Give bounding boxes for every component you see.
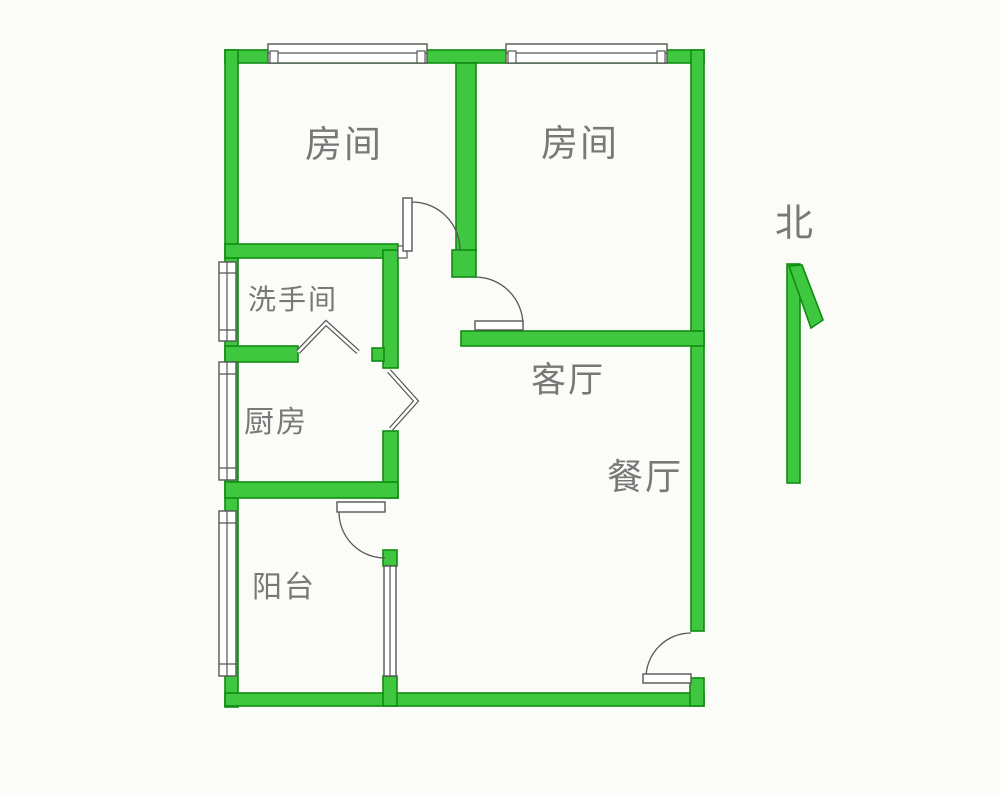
wall-bedroom2-bottom — [461, 331, 704, 346]
living-room-label: 客厅 — [531, 361, 605, 401]
bathroom-bifold-door — [298, 323, 358, 352]
walls — [225, 50, 704, 707]
entrance-door-arc — [646, 633, 691, 678]
bedroom2-window-jamb-left — [508, 51, 516, 63]
bedroom1-door-arc — [412, 202, 460, 250]
doors — [298, 198, 691, 683]
bedroom1-label: 房间 — [305, 123, 383, 166]
kitchen-label: 厨房 — [244, 405, 308, 440]
wall-entry-corner — [690, 678, 704, 706]
floor-plan-drawing: 北 房间 房间 洗手间 厨房 客厅 餐厅 阳台 — [0, 0, 1000, 793]
wall-balcony-divider-stub-bottom — [383, 676, 397, 706]
balcony-door-leaf — [337, 502, 385, 512]
floor-plan-page: 北 房间 房间 洗手间 厨房 客厅 餐厅 阳台 — [0, 0, 1000, 793]
north-label: 北 — [775, 201, 815, 245]
bathroom-label: 洗手间 — [248, 283, 338, 316]
bedroom2-window-jamb-right — [657, 51, 665, 63]
dining-room-label: 餐厅 — [607, 457, 683, 498]
kitchen-bifold-door — [389, 371, 416, 429]
wall-central-divider-foot — [452, 250, 476, 277]
wall-outer-bottom — [225, 693, 704, 706]
compass: 北 — [775, 201, 823, 483]
balcony-door-arc — [339, 512, 385, 558]
balcony-label: 阳台 — [252, 570, 316, 605]
wall-bedroom1-bottom — [225, 244, 398, 258]
wall-kitchen-bottom — [225, 482, 398, 498]
north-arrow-shaft — [787, 264, 800, 483]
bedroom2-door-leaf — [475, 321, 523, 330]
bedroom1-door-leaf — [403, 198, 412, 251]
wall-balcony-divider-stub-top — [383, 550, 397, 566]
wall-bathroom-door-jamb — [372, 348, 384, 361]
wall-central-divider — [456, 63, 476, 251]
bedroom1-window-jamb-right — [417, 51, 425, 63]
bedroom1-window-jamb-left — [270, 51, 278, 63]
wall-bathroom-right — [383, 250, 398, 368]
entrance-door-leaf — [643, 674, 691, 683]
bedroom2-label: 房间 — [541, 122, 619, 165]
bedroom2-door-arc — [475, 277, 523, 325]
wall-bathroom-bottom — [225, 346, 298, 362]
